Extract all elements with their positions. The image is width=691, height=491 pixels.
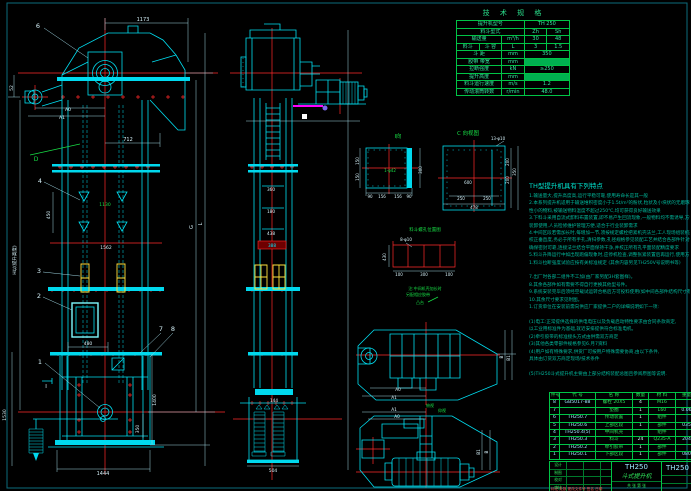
note-line: 1.料斗拉断强度试验应按有关标准规定 (其余内容另见TH250V号说明书等) — [529, 260, 690, 267]
note-line: 10.其余尺寸要求见附图。 — [529, 297, 690, 304]
cad-label: 4 — [38, 177, 42, 185]
bom-cell: 1 — [633, 452, 649, 459]
bom-cell — [633, 430, 649, 437]
bom-row: 1TH250.1下部区段1部件080 — [550, 452, 691, 459]
note-line: (5)TH250斗式提升机主要由上部分结构装配总图且参阅原图等说明. — [529, 371, 690, 378]
bom-cell: L60 — [649, 407, 676, 414]
note-line: 校正垂直度,务必于所有手孔,清扫参数,孔径规格参见装配工艺并结合各部件针对性 — [529, 237, 690, 244]
spec-cell: 胶带 带宽 — [457, 58, 502, 66]
spec-cell: 1.5 — [547, 43, 570, 51]
cad-label: 200 — [505, 176, 510, 184]
cad-label: 1530 — [2, 409, 8, 421]
cad-label: C 向视图 — [457, 129, 480, 137]
bom-cell: 8 — [550, 400, 560, 407]
bom-cell: 传动装置 — [596, 415, 633, 422]
bom-header-cell: 名 称 — [596, 393, 633, 400]
signature-label: 设计 — [550, 462, 567, 469]
titleblock-model: TH250 — [612, 462, 661, 473]
cad-sheet: 6117352A0A1712D445011301562H以(提升高度)3278G… — [0, 0, 691, 491]
spec-cell: 3 — [524, 43, 547, 51]
bom-cell: Q235-A — [649, 437, 676, 444]
cad-label: 478 — [470, 205, 478, 210]
notes-block: TH型提升机具有下列特点 1.输送量大,提升高度高,运行平稳可靠,使用寿命长是其… — [529, 180, 690, 388]
cad-label: A1 — [391, 407, 397, 412]
spec-table-title: 技 术 规 格 — [456, 8, 572, 18]
bom-row: 3TH250.3料斗24Q235-A204 — [550, 437, 691, 444]
cad-label: 另配相应胶带 — [406, 291, 430, 297]
cad-label: H以(提升高度) — [11, 245, 18, 275]
note-line: 4.中间区段若需加长时,每增加一节,须按规定螺栓把紧机壳法兰,工人现场组装机壳务… — [529, 230, 690, 237]
spec-cell: 提升高度 — [457, 73, 502, 81]
note-line: 7.出厂时各部二组件不工加(由厂家另配3H套图样)。 — [529, 274, 690, 281]
note-line: (3)其他各类零部件规格参见6.月7资料 — [529, 341, 690, 348]
spec-cell: Sh — [547, 28, 570, 36]
bom-cell: 080 — [676, 452, 691, 459]
cad-label: 1 — [38, 358, 42, 366]
spec-cell: L — [502, 43, 525, 51]
spec-cell: mm — [502, 58, 525, 66]
bom-cell: 部件 — [649, 422, 676, 429]
bom-cell: 中间机壳 — [596, 430, 633, 437]
cad-label: 156 — [378, 194, 386, 199]
bom-cell: 组件 — [649, 415, 676, 422]
note-line — [529, 312, 690, 319]
note-line: 1.输送量大,提升高度高,运行平稳可靠,使用寿命长是其一般 — [529, 193, 690, 200]
cad-label: 料斗螺孔位置图 — [409, 226, 441, 233]
cad-label: 1400 — [152, 394, 158, 406]
base-plate — [55, 440, 155, 445]
cad-label: 430 — [382, 253, 387, 261]
bom-header-cell: 重量 — [676, 393, 691, 400]
cad-label: 504 — [269, 468, 278, 474]
bom-cell — [676, 415, 691, 422]
cad-label: 1562 — [100, 245, 112, 251]
cad-label: 1130 — [99, 202, 111, 208]
cad-label: A0 — [394, 414, 400, 419]
cad-label: A0 — [65, 107, 71, 113]
spec-cell: m/s — [502, 81, 525, 89]
cad-label: 1-φ42 — [384, 168, 396, 173]
bom-cell: 牵引胶带 — [596, 444, 633, 451]
spec-cell: mm — [502, 51, 525, 59]
cad-label: 712 — [123, 137, 133, 143]
counterweight — [29, 429, 43, 453]
bom-cell: 部件 — [649, 444, 676, 451]
bom-cell: 组件 — [649, 430, 676, 437]
spec-cell: 料斗 — [457, 43, 480, 51]
cad-label: 250 — [483, 196, 491, 201]
cad-label: B — [484, 450, 489, 453]
bom-header-cell: 代 号 — [560, 393, 596, 400]
note-line: 以工业用标准件为基础,就近安排提供符合标准电机。 — [529, 326, 690, 333]
note-line — [529, 267, 690, 274]
cad-label: 360 — [267, 187, 275, 192]
spec-cell: kN — [502, 66, 525, 74]
notes-title: TH型提升机具有下列特点 — [529, 180, 690, 190]
cad-label: 100 — [395, 272, 403, 277]
takeup-screws — [252, 405, 288, 456]
cad-label: A1 — [391, 395, 397, 400]
plan-view-top — [358, 330, 497, 400]
note-line: 确保密封可靠,连接法兰结合平面保持干净,并校正所有孔平面装配精度要求 — [529, 245, 690, 252]
spec-cell: TH 250 — [524, 21, 569, 29]
title-block-right: TH250 — [662, 462, 691, 491]
cad-label: 100 — [445, 272, 453, 277]
spec-cell: Zh — [524, 28, 547, 36]
bom-cell: 3 — [550, 437, 560, 444]
bom-row: 8GB5017-88螺栓 20X54M16 — [550, 400, 691, 407]
bom-cell: 下部区段 — [596, 452, 633, 459]
cad-label: 1173 — [137, 17, 150, 23]
cad-label: L — [198, 222, 204, 225]
note-line: 具体由订货双方商定现场/技术条件 — [529, 356, 690, 363]
cad-label: 180 — [267, 209, 275, 214]
spec-cell: 48 — [547, 36, 570, 44]
bom-cell: 1 — [550, 452, 560, 459]
signature-row: 校对 — [550, 477, 611, 485]
cad-label: 6 — [36, 22, 40, 30]
cad-label: G — [189, 225, 195, 229]
cad-label: 3 — [37, 267, 41, 275]
cad-label: I向 — [394, 132, 401, 140]
signature-label: 制图 — [550, 470, 567, 477]
bom-row: 7垫圈1L600.06 — [550, 407, 691, 414]
bom-table: 件号代 号名 称数量材 料重量备注 8GB5017-88螺栓 20X54M167… — [549, 392, 691, 460]
cad-label: 150 — [355, 173, 360, 181]
bom-row: 6TH250.7传动装置1组件 — [550, 415, 691, 422]
bom-cell: TH250.3 — [560, 437, 596, 444]
cad-label: B — [499, 355, 504, 358]
cad-label: 90 — [406, 194, 412, 199]
bom-row: 5TH250.6上部区段1部件035 — [550, 422, 691, 429]
bom-row: 2TH250.2牵引胶带1部件 — [550, 444, 691, 451]
cad-label: 7 — [159, 325, 163, 333]
note-line: 装卸使用,人员检修维护管理方便,适合于行业装卸需求 — [529, 223, 690, 230]
bom-cell: 1 — [633, 422, 649, 429]
buckets-yellow-side — [255, 265, 285, 289]
spec-cell: 输送量 — [457, 36, 502, 44]
drive-platform — [57, 77, 190, 81]
cad-label: A0 — [395, 387, 401, 392]
spec-table: 技 术 规 格 提升机型号TH 250料斗型式ZhSh输送量m³/h3048料斗… — [456, 8, 572, 96]
bom-cell — [676, 400, 691, 407]
bolt-marks — [50, 95, 294, 434]
bom-header-cell: 数量 — [633, 393, 649, 400]
item-leaders — [43, 28, 412, 408]
cad-label: 480 — [84, 341, 93, 347]
cad-label: B1 — [506, 355, 511, 361]
bom-cell: 5 — [550, 422, 560, 429]
cad-label: 144 — [270, 398, 278, 403]
bom-cell — [676, 444, 691, 451]
note-line: 2.本系列提升机适用于输送堆积密度小于1.5t/m³的粉状,粒状及小块状的无磨琢… — [529, 200, 690, 207]
note-line: (2)牵引胶带的标准接头方式由供需双方商定 — [529, 334, 690, 341]
bom-header-cell: 材 料 — [649, 393, 676, 400]
spec-cell: ≥250 — [524, 66, 569, 74]
bom-cell: TH250.7 — [560, 415, 596, 422]
note-line — [529, 363, 690, 370]
bom-cell: M16 — [649, 400, 676, 407]
drawing-number: TH250 — [662, 462, 691, 475]
bom-cell: 204 — [676, 437, 691, 444]
bom-cell: TH250.1 — [560, 452, 596, 459]
spec-cell: r/min — [502, 88, 525, 96]
bom-cell — [676, 430, 691, 437]
spec-cell: 斗 距 — [457, 51, 502, 59]
spec-cell: 斗 容 — [479, 43, 502, 51]
main-elevation-view — [25, 26, 190, 461]
cad-label: D — [34, 156, 39, 163]
signature-label: 校对 — [550, 477, 567, 484]
bom-cell — [560, 407, 596, 414]
bom-cell: 0.06 — [676, 407, 691, 414]
cad-label: A1 — [59, 115, 65, 121]
cad-label: 52 — [9, 85, 15, 91]
bom-cell: 1 — [633, 407, 649, 414]
titleblock-product: 斗式提升机 — [612, 473, 661, 481]
note-line: 5.料斗升降运行中如出现跑偏现象时,应停机检查,调整张紧装置后再运行,使用方 — [529, 252, 690, 259]
cad-label: 350 — [512, 168, 517, 176]
cad-label: 438 — [267, 231, 275, 236]
cad-label: 仰视 — [438, 407, 446, 413]
title-block-center: TH250 斗式提升机 共 张 第 张 — [612, 462, 662, 491]
bom-row: 4TH250.4(5)中间机壳组件 — [550, 430, 691, 437]
cad-label: 8-φ10 — [400, 237, 412, 242]
bom-cell: TH250.6 — [560, 422, 596, 429]
cad-label: 俯视 — [426, 402, 434, 408]
spec-cell: mm — [502, 73, 525, 81]
bom-cell: 垫圈 — [596, 407, 633, 414]
cad-label: B1 — [476, 449, 481, 455]
bom-cell: 上部区段 — [596, 422, 633, 429]
bom-cell: 料斗 — [596, 437, 633, 444]
note-line: 1.订货单位在安装前需向供应厂家提供二户的详细说明如下一项: — [529, 304, 690, 311]
white-dim-box — [302, 114, 307, 119]
cad-label: 300 — [420, 272, 428, 277]
head-flange — [241, 57, 246, 87]
bom-cell: 1 — [633, 444, 649, 451]
cad-label: 156 — [394, 194, 402, 199]
bom-cell: 4 — [550, 430, 560, 437]
spec-cell: 拉断强度 — [457, 66, 502, 74]
cad-label: 8 — [171, 325, 175, 333]
bom-cell: TH250.2 — [560, 444, 596, 451]
spec-cell — [524, 58, 569, 66]
title-block: 设计制图校对审核标记 处数 更改文件号 签名 日期 TH250 斗式提升机 共 … — [549, 461, 691, 491]
note-line: 性小的物料,被输送物料温度不超过250℃,均可获得良好输送效果 — [529, 208, 690, 215]
spec-cell — [524, 73, 569, 81]
bom-cell: TH250.4(5) — [560, 430, 596, 437]
note-line: 9.系统安装完毕后须经空载试运转合格后方可投料使用(如中间各部件结构尺寸有变更按… — [529, 289, 690, 296]
revision-row: 标记 处数 更改文件号 签名 日期 — [551, 487, 602, 491]
spec-cell: 1.2 — [524, 81, 569, 89]
bom-cell: 6 — [550, 415, 560, 422]
bom-cell: 1 — [633, 415, 649, 422]
bom-cell: 4 — [633, 400, 649, 407]
spec-cell: 30 — [524, 36, 547, 44]
cad-label: 150 — [355, 157, 360, 165]
cad-label: 600 — [464, 180, 472, 185]
cad-label: 90 — [367, 194, 373, 199]
cad-label: 350 — [135, 425, 141, 434]
cad-label: 388 — [268, 243, 276, 248]
cad-label: 2 — [37, 292, 41, 300]
spec-cell: 料斗运行速度 — [457, 81, 502, 89]
bom-cell: 24 — [633, 437, 649, 444]
bom-cell: 7 — [550, 407, 560, 414]
bucket-symbols — [79, 192, 127, 231]
spec-cell: 48.0 — [524, 88, 569, 96]
cad-label: 450 — [46, 211, 52, 220]
cad-label: 300 — [418, 166, 423, 174]
note-line: 8.其余各部件如有需要不得自行更换其他型号件。 — [529, 282, 690, 289]
signature-grid: 设计制图校对审核标记 处数 更改文件号 签名 日期 — [550, 462, 612, 491]
spec-cell: m³/h — [502, 36, 525, 44]
bom-cell: 035 — [676, 422, 691, 429]
signature-row: 设计 — [550, 462, 611, 470]
spec-cell: 传动滚筒转数 — [457, 88, 502, 96]
spec-cell: 提升机型号 — [457, 21, 525, 29]
note-line: (4)用户如有特殊要求,供货厂可按用户特殊需要协商,由以下条件, — [529, 349, 690, 356]
note-line: 3.下料斗采用自流式卸料布置装置,即不易产生回流现象,一般物料均不需诱导,方便于 — [529, 215, 690, 222]
cad-label: 1444 — [97, 471, 110, 477]
purple-dot — [323, 106, 328, 111]
cad-label: 200 — [505, 158, 510, 166]
spec-cell: 料斗型式 — [457, 28, 525, 36]
bom-cell: GB5017-88 — [560, 400, 596, 407]
sheet-row: 共 张 第 张 — [612, 481, 661, 490]
cad-label: 凸台 — [416, 299, 424, 305]
cad-label: I — [45, 384, 47, 390]
signature-row: 制图 — [550, 470, 611, 478]
bom-cell: 螺栓 20X5 — [596, 400, 633, 407]
cad-label: 250 — [457, 196, 465, 201]
cad-label: 注:中间机壳加长时 — [408, 285, 441, 291]
bucket-hole-layout — [393, 241, 455, 267]
note-line: (1)电工:正常提供选择的供电电压以及负载启动特性要求由合同条款商定, — [529, 319, 690, 326]
bom-header-cell: 件号 — [550, 393, 560, 400]
bom-cell: 2 — [550, 444, 560, 451]
bom-cell: 部件 — [649, 452, 676, 459]
spec-cell: 350 — [524, 51, 569, 59]
cad-label: 13-φ10 — [491, 136, 506, 141]
